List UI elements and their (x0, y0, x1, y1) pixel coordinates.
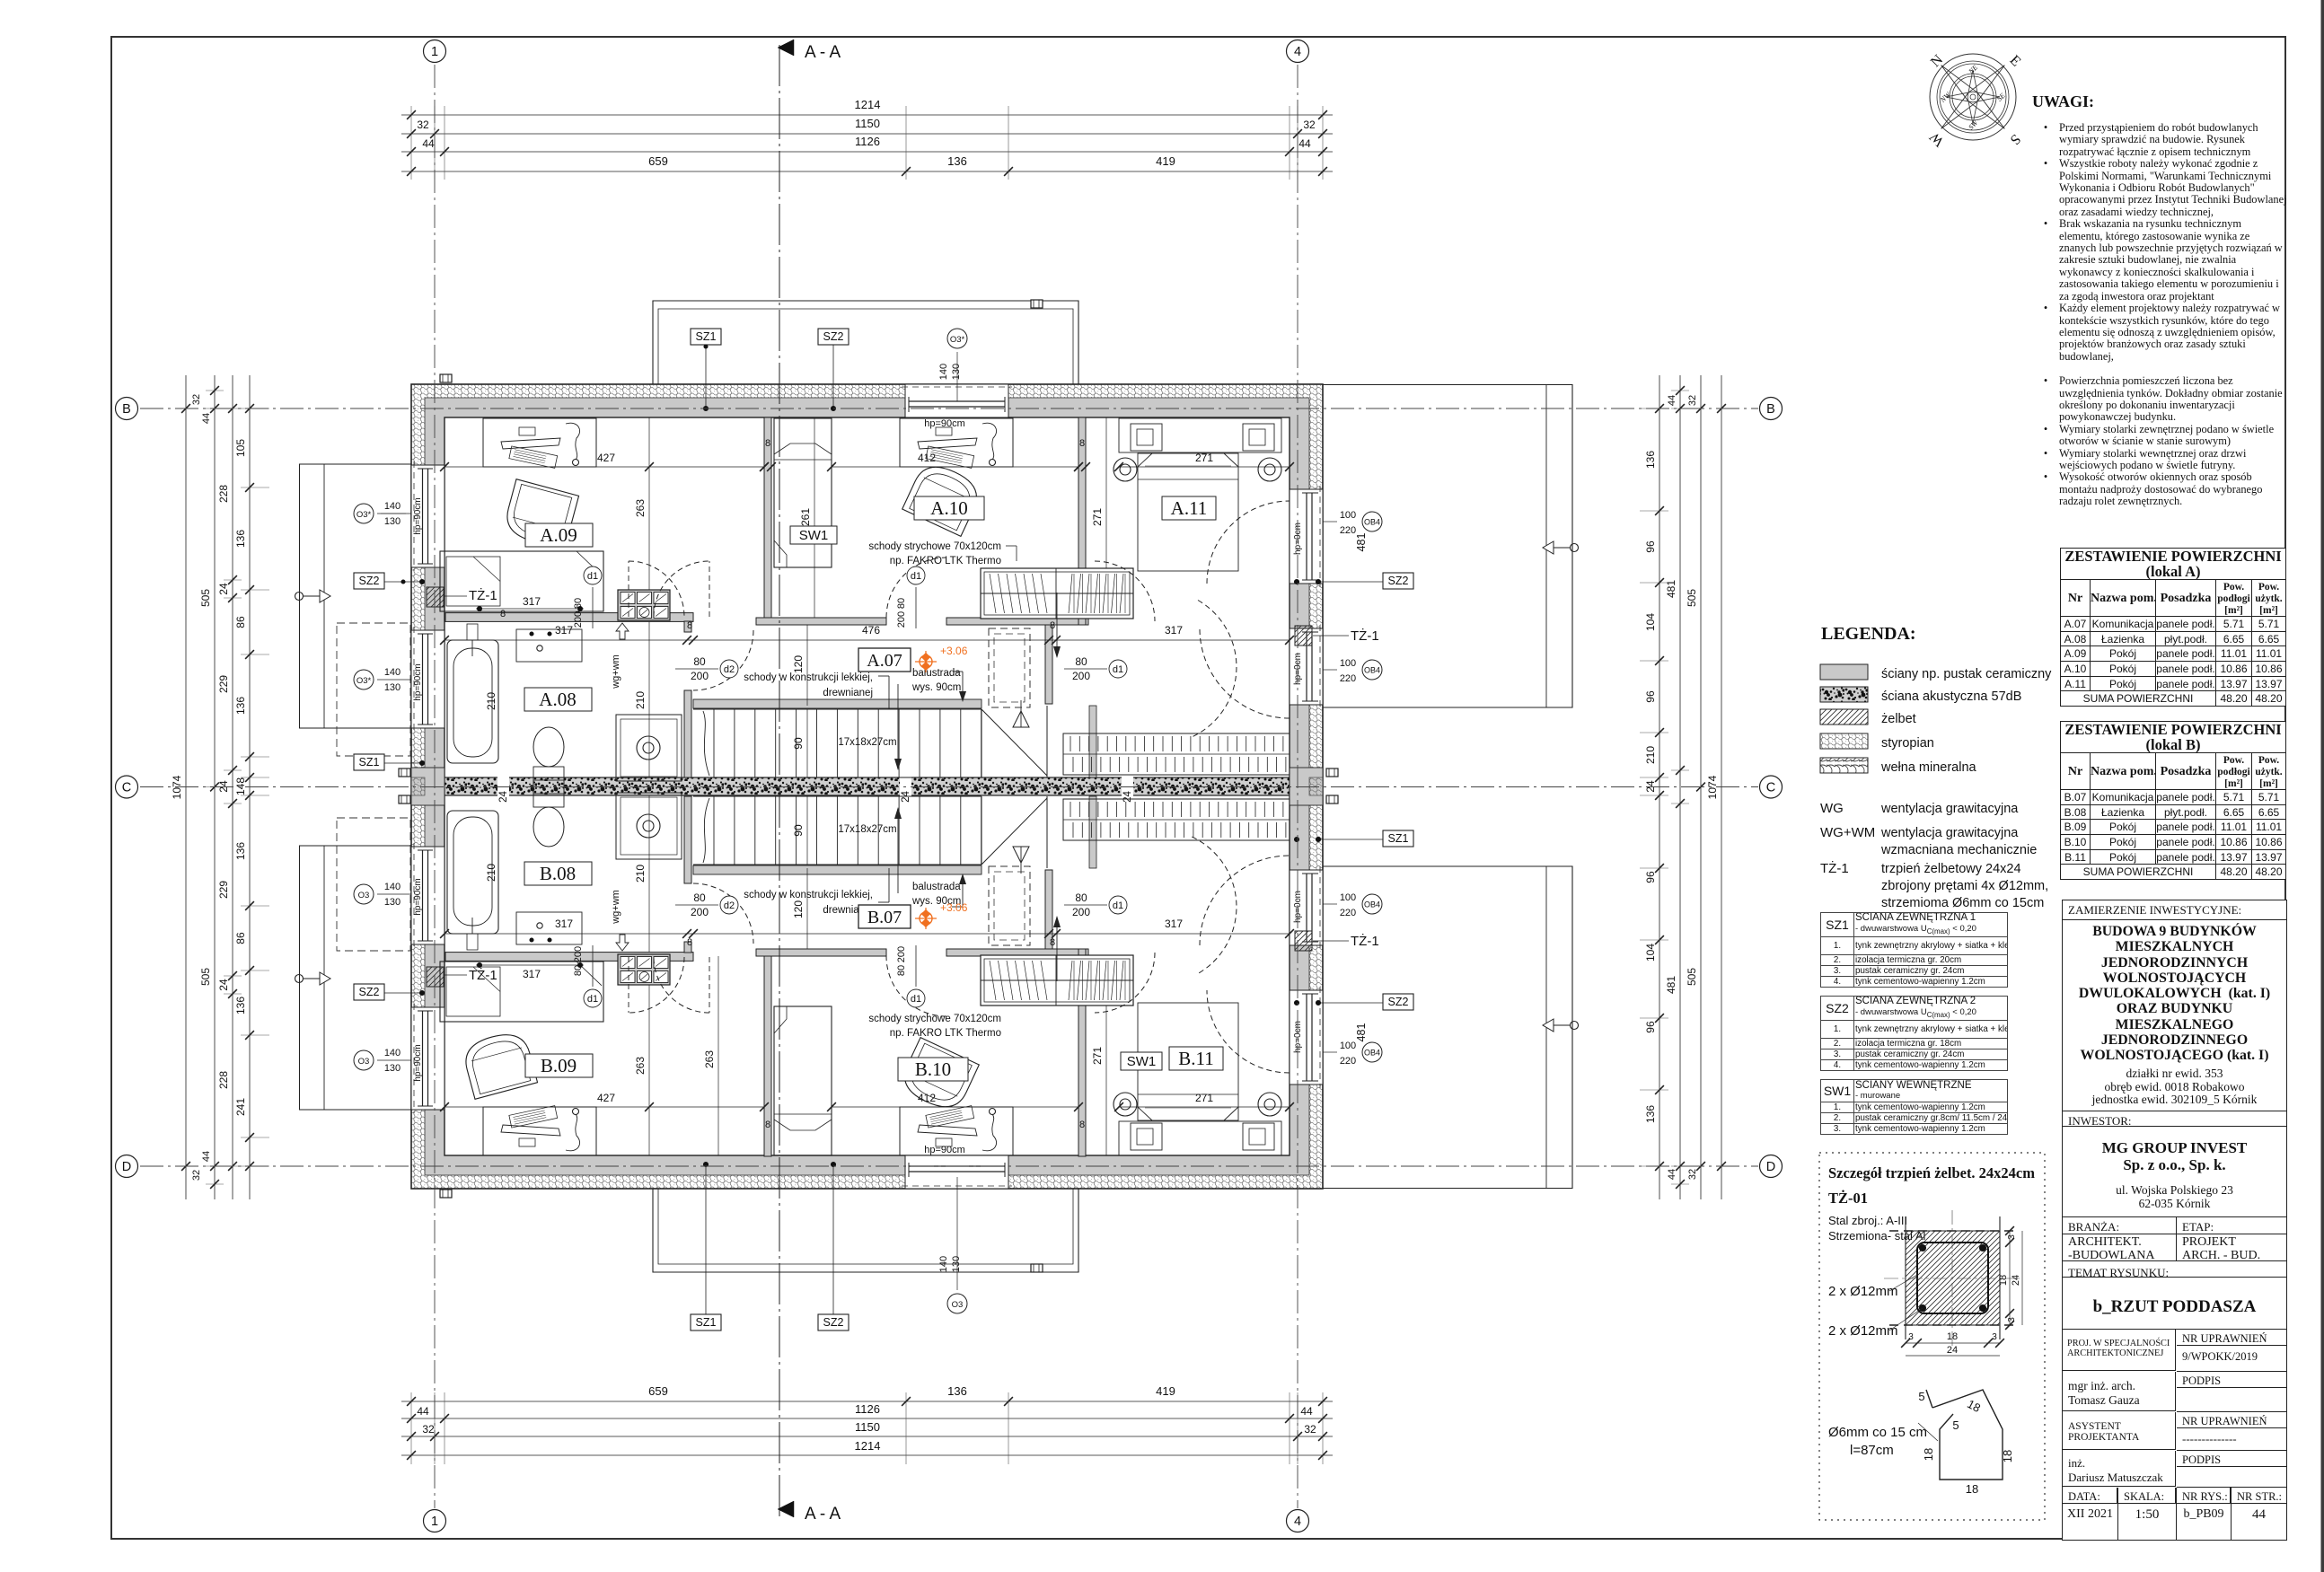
svg-text:hp=0cm: hp=0cm (1293, 1021, 1303, 1053)
svg-text:24: 24 (1947, 1345, 1958, 1356)
svg-text:44: 44 (1667, 1169, 1677, 1180)
svg-text:505: 505 (1686, 968, 1698, 986)
svg-text:130: 130 (951, 1256, 962, 1272)
svg-text:1126: 1126 (855, 135, 880, 148)
svg-text:44: 44 (1298, 137, 1311, 150)
svg-text:419: 419 (1156, 154, 1175, 168)
svg-text:200: 200 (1072, 906, 1090, 918)
svg-text:140: 140 (938, 364, 949, 380)
svg-text:trzpień żelbetowy 24x24: trzpień żelbetowy 24x24 (1881, 862, 2021, 876)
svg-text:200: 200 (691, 906, 709, 918)
svg-text:104: 104 (1644, 613, 1657, 631)
svg-text:SW1: SW1 (1127, 1054, 1157, 1069)
svg-text:d2: d2 (724, 664, 735, 675)
svg-text:wzmacniana mechanicznie: wzmacniana mechanicznie (1880, 843, 2037, 857)
svg-text:80: 80 (1075, 891, 1087, 904)
svg-text:86: 86 (234, 616, 247, 628)
svg-text:styropian: styropian (1881, 736, 1934, 751)
svg-text:8: 8 (765, 438, 770, 449)
svg-text:SZ2: SZ2 (1388, 996, 1409, 1008)
svg-text:np. FAKRO LTK Thermo: np. FAKRO LTK Thermo (890, 1028, 1001, 1039)
svg-text:317: 317 (1165, 918, 1183, 930)
svg-text:Szczegół trzpień żelbet. 24x24: Szczegół trzpień żelbet. 24x24cm (1828, 1164, 2035, 1181)
svg-text:SZ2: SZ2 (359, 986, 380, 998)
svg-text:96: 96 (1644, 540, 1657, 553)
svg-text:hp=0cm: hp=0cm (1293, 653, 1303, 685)
svg-text:D: D (1766, 1160, 1775, 1174)
svg-text:d1: d1 (1113, 664, 1123, 675)
svg-text:SZ1: SZ1 (696, 1316, 717, 1329)
svg-text:18: 18 (1966, 1482, 1978, 1496)
svg-text:SZ2: SZ2 (359, 575, 380, 587)
svg-text:481: 481 (1665, 976, 1677, 994)
svg-text:2 x Ø12mm: 2 x Ø12mm (1828, 1323, 1898, 1339)
svg-text:wys. 90cm: wys. 90cm (911, 682, 961, 693)
svg-text:80: 80 (573, 965, 584, 976)
svg-text:3: 3 (2007, 1317, 2017, 1322)
svg-text:261: 261 (799, 508, 812, 526)
svg-text:A - A: A - A (805, 1505, 841, 1524)
svg-text:d2: d2 (724, 900, 735, 911)
svg-text:32: 32 (1687, 395, 1698, 406)
svg-text:505: 505 (199, 968, 212, 986)
svg-text:wełna mineralna: wełna mineralna (1880, 760, 1977, 775)
svg-text:100: 100 (1340, 658, 1356, 669)
svg-text:B.11: B.11 (1178, 1048, 1213, 1069)
svg-text:136: 136 (234, 697, 247, 715)
svg-text:427: 427 (597, 452, 615, 464)
svg-text:O3*: O3* (357, 676, 372, 686)
svg-text:427: 427 (597, 1092, 615, 1104)
svg-text:SW1: SW1 (799, 528, 829, 543)
svg-text:D: D (122, 1160, 131, 1174)
svg-text:hp=90cm: hp=90cm (413, 497, 423, 534)
svg-text:659: 659 (648, 154, 668, 168)
svg-text:8: 8 (1050, 620, 1055, 631)
svg-text:5: 5 (1918, 1390, 1924, 1403)
svg-text:18: 18 (2001, 1450, 2014, 1462)
svg-text:80: 80 (1075, 655, 1087, 668)
svg-text:24: 24 (498, 791, 509, 803)
svg-text:8: 8 (1079, 438, 1085, 449)
svg-text:24: 24 (217, 979, 230, 991)
svg-text:271: 271 (1195, 1092, 1213, 1104)
svg-text:strzemioma Ø6mm co 15cm: strzemioma Ø6mm co 15cm (1881, 896, 2044, 910)
svg-text:1126: 1126 (855, 1402, 880, 1416)
svg-text:210: 210 (485, 864, 497, 882)
svg-text:OB4: OB4 (1364, 1049, 1380, 1058)
svg-text:24: 24 (217, 583, 230, 595)
svg-text:481: 481 (1355, 533, 1368, 552)
svg-text:317: 317 (523, 595, 541, 608)
svg-text:4: 4 (1294, 1515, 1301, 1529)
svg-text:32: 32 (422, 1423, 435, 1436)
svg-text:drewnianej: drewnianej (823, 688, 873, 698)
svg-text:271: 271 (1091, 1047, 1104, 1065)
svg-text:44: 44 (201, 1151, 212, 1162)
svg-text:80: 80 (693, 891, 706, 904)
svg-text:zbrojony prętami 4x Ø12mm,: zbrojony prętami 4x Ø12mm, (1881, 879, 2048, 893)
svg-text:317: 317 (1165, 624, 1183, 637)
svg-text:18: 18 (1947, 1331, 1958, 1342)
svg-text:44: 44 (1300, 1405, 1313, 1418)
svg-text:1214: 1214 (855, 1439, 881, 1453)
svg-text:C: C (122, 781, 131, 795)
svg-text:1214: 1214 (855, 98, 881, 111)
svg-text:schody strychowe 70x120cm: schody strychowe 70x120cm (868, 541, 1001, 552)
svg-text:schody w konstrukcji lekkiej,: schody w konstrukcji lekkiej, (744, 890, 873, 900)
svg-text:TŻ-1: TŻ-1 (469, 587, 497, 603)
svg-text:200: 200 (896, 946, 907, 962)
svg-text:136: 136 (234, 997, 247, 1014)
svg-text:LEGENDA:: LEGENDA: (1821, 624, 1916, 644)
svg-text:228: 228 (217, 1071, 230, 1089)
svg-text:200: 200 (691, 670, 709, 682)
svg-text:TŻ-01: TŻ-01 (1828, 1190, 1868, 1207)
svg-text:wentylacja grawitacyjna: wentylacja grawitacyjna (1880, 802, 2019, 816)
svg-text:d1: d1 (911, 571, 921, 582)
svg-text:100: 100 (1340, 892, 1356, 903)
svg-text:210: 210 (634, 865, 647, 883)
svg-text:505: 505 (1686, 589, 1698, 607)
svg-text:317: 317 (523, 968, 541, 980)
svg-text:44: 44 (417, 1405, 429, 1418)
svg-text:220: 220 (1340, 673, 1356, 684)
svg-text:l=87cm: l=87cm (1850, 1443, 1894, 1458)
svg-text:136: 136 (234, 530, 247, 548)
svg-text:90: 90 (792, 824, 805, 837)
svg-text:8: 8 (1079, 1120, 1085, 1130)
svg-text:B: B (122, 402, 131, 417)
svg-text:17x18x27cm: 17x18x27cm (838, 824, 896, 835)
svg-text:96: 96 (1644, 690, 1657, 703)
svg-text:86: 86 (234, 932, 247, 944)
svg-text:B.07: B.07 (867, 908, 902, 927)
svg-text:18: 18 (1998, 1275, 2009, 1286)
svg-text:ściana akustyczna 57dB: ściana akustyczna 57dB (1881, 689, 2021, 704)
svg-text:120: 120 (792, 900, 805, 918)
svg-text:200: 200 (573, 946, 584, 962)
svg-text:OB4: OB4 (1364, 666, 1380, 675)
svg-text:263: 263 (703, 1050, 716, 1068)
svg-text:130: 130 (384, 1063, 401, 1074)
svg-text:200: 200 (1072, 670, 1090, 682)
svg-text:1150: 1150 (855, 1420, 880, 1434)
svg-text:wg+wm: wg+wm (611, 890, 621, 925)
svg-text:24: 24 (2011, 1275, 2021, 1286)
svg-text:24: 24 (1644, 780, 1657, 793)
svg-text:TŻ-1: TŻ-1 (1351, 628, 1379, 644)
svg-text:B.08: B.08 (540, 863, 576, 884)
svg-text:659: 659 (648, 1384, 668, 1398)
svg-text:24: 24 (217, 780, 230, 793)
svg-text:229: 229 (217, 881, 230, 899)
svg-text:A.08: A.08 (539, 689, 576, 710)
svg-text:136: 136 (947, 1384, 967, 1398)
svg-text:80: 80 (896, 965, 907, 976)
svg-text:A.09: A.09 (540, 524, 577, 546)
svg-text:5: 5 (1952, 1418, 1959, 1432)
svg-text:8: 8 (687, 620, 692, 631)
svg-text:210: 210 (1644, 746, 1657, 764)
svg-text:8: 8 (500, 609, 506, 619)
svg-text:44: 44 (1667, 395, 1677, 406)
svg-text:104: 104 (1644, 944, 1657, 962)
svg-text:Stal zbroj.: A-III: Stal zbroj.: A-III (1828, 1214, 1907, 1227)
svg-text:C: C (1766, 781, 1775, 795)
svg-text:OB4: OB4 (1364, 518, 1380, 527)
svg-text:SZ1: SZ1 (1388, 832, 1409, 845)
svg-text:136: 136 (947, 154, 967, 168)
svg-text:hp=90cm: hp=90cm (413, 1044, 423, 1081)
svg-text:140: 140 (938, 1256, 949, 1272)
svg-text:O3: O3 (358, 891, 370, 900)
svg-text:3: 3 (1908, 1332, 1914, 1342)
svg-text:32: 32 (191, 394, 202, 405)
svg-text:210: 210 (634, 691, 647, 709)
svg-text:100: 100 (1340, 1041, 1356, 1051)
svg-text:481: 481 (1355, 1023, 1368, 1042)
svg-text:220: 220 (1340, 1056, 1356, 1067)
svg-text:SZ2: SZ2 (823, 1316, 844, 1329)
svg-text:A.10: A.10 (930, 497, 967, 519)
svg-text:8: 8 (765, 1120, 770, 1130)
svg-text:d1: d1 (1113, 900, 1123, 911)
svg-text:44: 44 (422, 137, 435, 150)
svg-text:balustrada: balustrada (912, 882, 961, 892)
svg-text:+3.06: +3.06 (940, 901, 968, 914)
svg-text:96: 96 (1644, 871, 1657, 883)
svg-text:32: 32 (191, 1170, 202, 1181)
svg-text:A.07: A.07 (867, 651, 902, 671)
svg-text:136: 136 (234, 842, 247, 860)
svg-text:balustrada: balustrada (912, 668, 961, 679)
svg-text:O3*: O3* (950, 335, 965, 345)
svg-text:1: 1 (431, 1515, 438, 1529)
svg-text:O3: O3 (952, 1300, 964, 1310)
svg-text:271: 271 (1091, 508, 1104, 526)
svg-text:476: 476 (862, 624, 880, 637)
svg-text:24: 24 (1122, 791, 1133, 803)
svg-text:SZ1: SZ1 (359, 756, 380, 768)
svg-text:hp=90cm: hp=90cm (413, 878, 423, 915)
svg-text:Ø6mm co 15 cm: Ø6mm co 15 cm (1828, 1425, 1927, 1440)
svg-text:SZ1: SZ1 (696, 330, 717, 343)
svg-text:130: 130 (384, 897, 401, 908)
svg-text:80: 80 (573, 598, 584, 609)
svg-text:32: 32 (417, 119, 429, 131)
svg-text:O3*: O3* (357, 510, 372, 520)
svg-text:TŻ-1: TŻ-1 (1820, 860, 1849, 876)
svg-text:263: 263 (634, 1057, 647, 1075)
svg-text:32: 32 (1303, 119, 1316, 131)
svg-text:hp=90cm: hp=90cm (924, 418, 965, 429)
svg-text:80: 80 (896, 598, 907, 609)
svg-text:100: 100 (1340, 510, 1356, 521)
svg-text:130: 130 (384, 682, 401, 693)
svg-text:d1: d1 (587, 571, 598, 582)
svg-text:wg+wm: wg+wm (611, 654, 621, 689)
svg-text:O3: O3 (358, 1057, 370, 1067)
svg-text:3: 3 (2007, 1234, 2017, 1240)
svg-text:wentylacja grawitacyjna: wentylacja grawitacyjna (1880, 826, 2019, 840)
svg-text:hp=0cm: hp=0cm (1293, 891, 1303, 923)
svg-text:140: 140 (384, 1048, 401, 1058)
svg-text:2 x Ø12mm: 2 x Ø12mm (1828, 1284, 1898, 1299)
svg-text:1150: 1150 (855, 117, 880, 130)
svg-text:A - A: A - A (805, 43, 841, 62)
svg-text:130: 130 (384, 516, 401, 527)
svg-text:ściany np. pustak ceramiczny: ściany np. pustak ceramiczny (1881, 667, 2052, 681)
svg-text:18: 18 (1922, 1448, 1935, 1461)
svg-text:WG+WM: WG+WM (1820, 825, 1875, 840)
svg-text:317: 317 (555, 624, 573, 637)
svg-text:210: 210 (485, 692, 497, 710)
svg-text:90: 90 (792, 737, 805, 750)
svg-text:140: 140 (384, 501, 401, 512)
svg-text:hp=90cm: hp=90cm (924, 1145, 965, 1155)
svg-text:96: 96 (1644, 1021, 1657, 1033)
svg-text:105: 105 (234, 439, 247, 457)
svg-text:220: 220 (1340, 908, 1356, 918)
svg-text:32: 32 (1304, 1423, 1316, 1436)
svg-text:140: 140 (384, 667, 401, 678)
svg-text:B.09: B.09 (541, 1055, 577, 1076)
svg-text:4: 4 (1294, 45, 1301, 59)
svg-text:228: 228 (217, 485, 230, 503)
svg-text:+3.06: +3.06 (940, 645, 968, 657)
svg-text:200: 200 (896, 611, 907, 628)
svg-text:B: B (1766, 402, 1775, 417)
svg-text:TŻ-1: TŻ-1 (469, 967, 497, 983)
svg-text:200: 200 (573, 611, 584, 628)
svg-text:44: 44 (201, 413, 212, 424)
svg-text:505: 505 (199, 589, 212, 607)
svg-text:A.11: A.11 (1171, 497, 1208, 519)
svg-text:d1: d1 (587, 994, 598, 1005)
svg-text:317: 317 (555, 918, 573, 930)
svg-text:80: 80 (693, 655, 706, 668)
svg-text:120: 120 (792, 655, 805, 673)
svg-text:schody w konstrukcji lekkiej,: schody w konstrukcji lekkiej, (744, 672, 873, 683)
svg-text:481: 481 (1665, 580, 1677, 598)
svg-text:8: 8 (1050, 937, 1055, 948)
svg-text:148: 148 (234, 777, 247, 795)
svg-text:SZ2: SZ2 (823, 330, 844, 343)
svg-text:130: 130 (951, 364, 962, 380)
svg-text:220: 220 (1340, 525, 1356, 536)
svg-text:hp=0cm: hp=0cm (1293, 523, 1303, 555)
svg-text:140: 140 (384, 882, 401, 892)
svg-text:263: 263 (634, 499, 647, 517)
svg-text:TŻ-1: TŻ-1 (1351, 933, 1379, 949)
svg-text:żelbet: żelbet (1881, 712, 1916, 726)
svg-text:8: 8 (687, 937, 692, 948)
svg-text:419: 419 (1156, 1384, 1175, 1398)
svg-text:B.10: B.10 (915, 1058, 951, 1080)
svg-text:OB4: OB4 (1364, 900, 1380, 909)
svg-text:SZ2: SZ2 (1388, 575, 1409, 587)
svg-text:3: 3 (1992, 1332, 1997, 1342)
svg-text:hp=90cm: hp=90cm (413, 663, 423, 700)
svg-text:136: 136 (1644, 451, 1657, 469)
svg-text:WG: WG (1820, 801, 1844, 816)
svg-text:136: 136 (1644, 1105, 1657, 1123)
svg-text:d1: d1 (911, 994, 921, 1005)
svg-text:1: 1 (431, 45, 438, 59)
svg-text:17x18x27cm: 17x18x27cm (838, 737, 896, 748)
svg-text:229: 229 (217, 675, 230, 693)
svg-text:241: 241 (234, 1098, 247, 1116)
